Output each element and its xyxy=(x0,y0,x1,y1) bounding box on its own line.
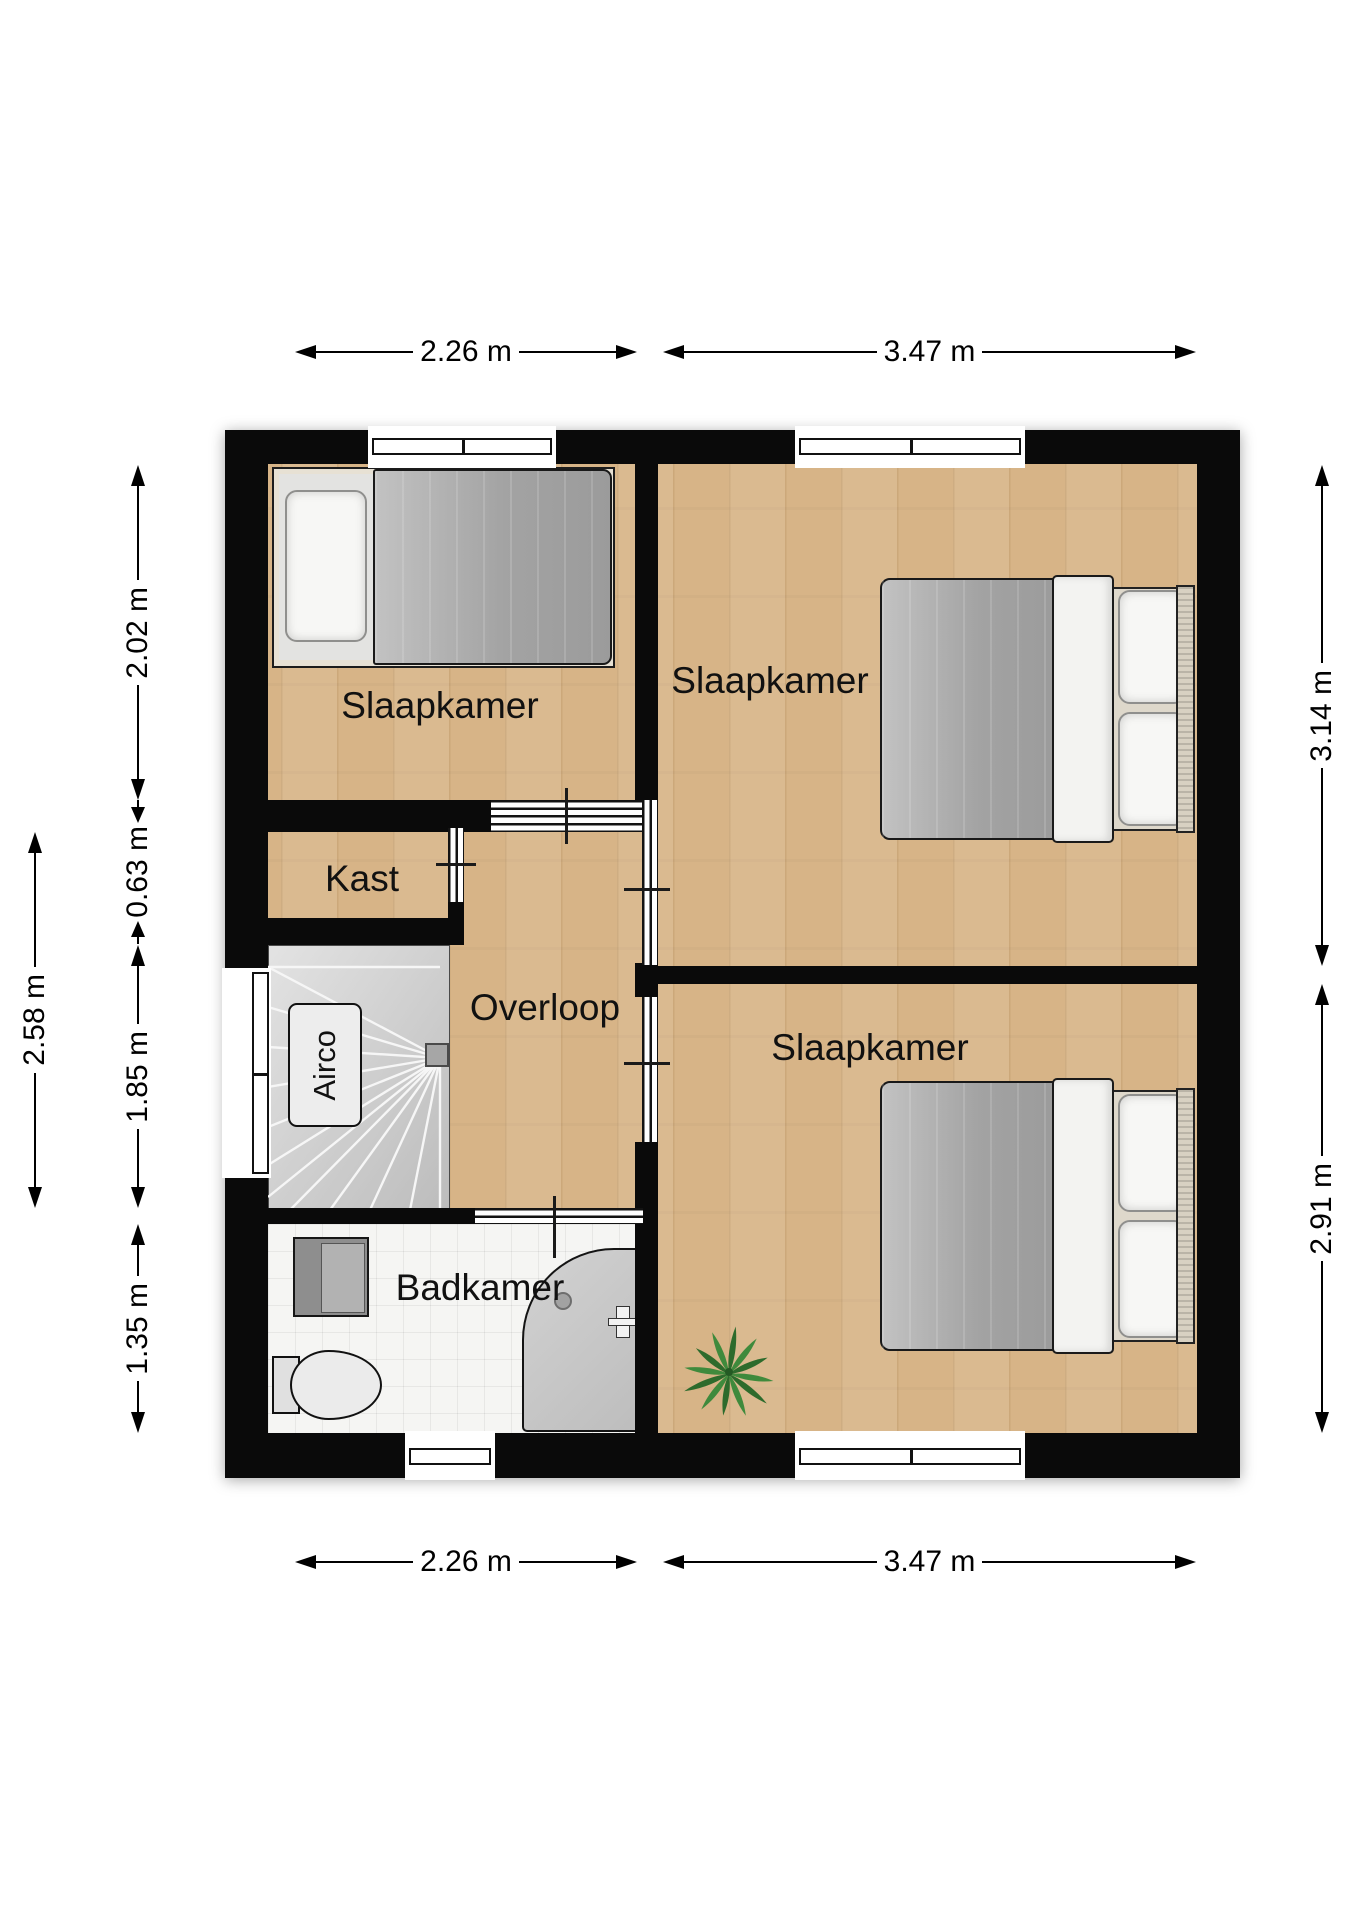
window-bedroom-left xyxy=(372,438,552,455)
dimension-right-top: 3.14 m xyxy=(1310,465,1334,966)
dimension-right-bottom: 2.91 m xyxy=(1310,984,1334,1433)
room-label-bedroom-left: Slaapkamer xyxy=(341,685,538,727)
double-bed-top xyxy=(880,578,1195,840)
headboard xyxy=(1176,1088,1195,1344)
dimension-bottom-right: 3.47 m xyxy=(663,1550,1196,1574)
wall-bottom xyxy=(495,1433,795,1478)
wall-left xyxy=(225,430,268,968)
dimension-left-closet: 0.63 m xyxy=(126,800,150,946)
room-label-bedroom-bottom-right: Slaapkamer xyxy=(771,1027,968,1069)
window-bedroom-top-right xyxy=(799,438,1021,455)
wall-bedrooms-divider xyxy=(658,966,1197,984)
dimension-left-outer: 2.58 m xyxy=(23,832,47,1208)
dimension-left-stairs: 1.85 m xyxy=(126,945,150,1208)
door-bedroom-top-right xyxy=(642,800,658,965)
wall-top xyxy=(556,430,795,464)
wall-corridor xyxy=(635,963,658,997)
door-bedroom-bottom-right xyxy=(642,997,658,1142)
wall-corridor xyxy=(635,455,658,800)
stair-newel-post xyxy=(426,1044,448,1066)
plant xyxy=(677,1320,781,1424)
door-bathroom xyxy=(475,1208,643,1224)
window-bathroom xyxy=(409,1448,491,1465)
airco-unit: Airco xyxy=(288,1003,362,1127)
window-stairwell xyxy=(252,972,269,1174)
dimension-left-bathroom: 1.35 m xyxy=(126,1224,150,1433)
folded-sheet xyxy=(1052,575,1114,843)
room-label-landing: Overloop xyxy=(470,987,620,1029)
wall-closet-east-stub xyxy=(448,900,464,920)
vanity-cabinet xyxy=(293,1237,369,1317)
pillow xyxy=(285,490,367,642)
wall-right xyxy=(1197,430,1240,1478)
room-label-bathroom: Badkamer xyxy=(396,1267,565,1309)
wall-bathroom-north xyxy=(268,1208,475,1224)
single-bed xyxy=(272,467,615,668)
room-label-bedroom-top-right: Slaapkamer xyxy=(671,660,868,702)
dimension-top-left: 2.26 m xyxy=(295,340,637,364)
wall-corridor xyxy=(635,1142,658,1435)
folded-sheet xyxy=(1052,1078,1114,1354)
window-bedroom-bottom-right xyxy=(799,1448,1021,1465)
double-bed-bottom xyxy=(880,1081,1195,1351)
airco-label: Airco xyxy=(307,1030,343,1101)
wall-left xyxy=(225,1178,268,1478)
room-label-closet: Kast xyxy=(325,858,399,900)
floorplan-canvas: Airco Slaapkamer Slaapkamer Slaapkamer K… xyxy=(0,0,1358,1920)
dimension-top-right: 3.47 m xyxy=(663,340,1196,364)
dimension-bottom-left: 2.26 m xyxy=(295,1550,637,1574)
headboard xyxy=(1176,585,1195,833)
dimension-left-bedroom: 2.02 m xyxy=(126,465,150,800)
wall-closet-south xyxy=(268,918,464,945)
duvet xyxy=(373,469,612,665)
